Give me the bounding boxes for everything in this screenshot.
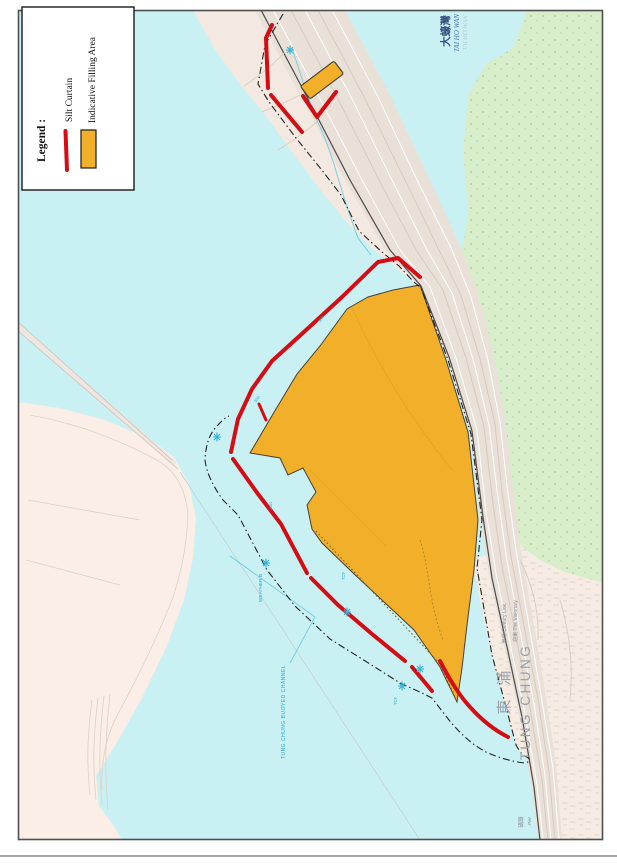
legend-silt-curtain-sample (66, 131, 68, 170)
the-visionary-label: 迎東 The Visionary (512, 600, 519, 642)
pier-zh-label: 碼頭 (518, 816, 525, 828)
tung-chung-zh-label: 東 涌 (496, 665, 513, 714)
tung-chung-en-label: TUNG CHUNG (518, 644, 533, 761)
century-link-label: 東環 Century Link, (501, 603, 508, 644)
tcf-label-b: TCF (393, 696, 398, 705)
tai-ho-wan-alt-label: TAI HO WAN (462, 15, 469, 51)
distance-label-2002: 2002 (268, 501, 273, 511)
pier-en-label: Pier (527, 817, 532, 826)
map-canvas: 大蠔灣 TAI HO WAN TAI HO WAN 東 涌 TUNG CHUNG… (0, 0, 617, 863)
buoyed-channel-label: TUNG CHUNG BUOYED CHANNEL (281, 665, 287, 759)
weather-buoy-label: WEATHER B (258, 574, 264, 602)
map-figure-page: 大蠔灣 TAI HO WAN TAI HO WAN 東 涌 TUNG CHUNG… (0, 0, 617, 863)
legend-title: Legend : (36, 119, 48, 162)
tai-ho-wan-en-label: TAI HO WAN (453, 14, 461, 52)
tcf-label-a: TCF (341, 571, 346, 580)
legend-filling-area-label: Indicative Filling Area (88, 36, 98, 123)
legend-box: Legend : Silt Curtain Indicative Filling… (22, 7, 134, 190)
tai-ho-wan-zh-label: 大蠔灣 (439, 15, 452, 47)
legend-silt-curtain-label: Silt Curtain (65, 78, 75, 122)
legend-filling-area-sample (81, 130, 96, 168)
